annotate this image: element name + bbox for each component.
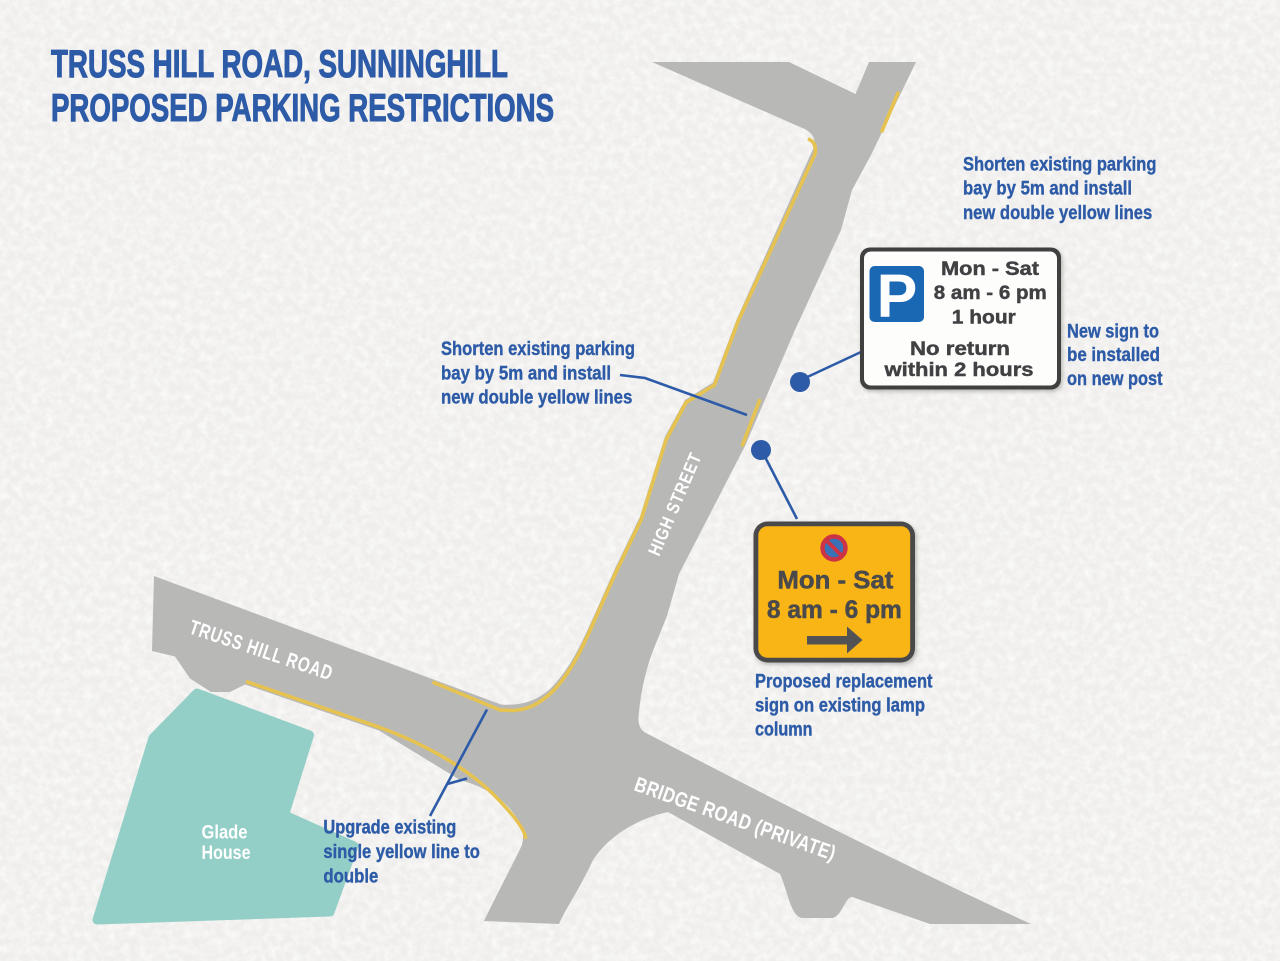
- svg-text:No return: No return: [910, 338, 1010, 360]
- svg-text:bay by 5m and install: bay by 5m and install: [441, 363, 611, 385]
- svg-text:Mon - Sat: Mon - Sat: [941, 258, 1040, 280]
- svg-text:Shorten existing parking: Shorten existing parking: [441, 338, 635, 360]
- svg-text:House: House: [202, 843, 251, 864]
- svg-text:TRUSS HILL ROAD, SUNNINGHILL: TRUSS HILL ROAD, SUNNINGHILL: [51, 43, 508, 86]
- svg-text:Mon - Sat: Mon - Sat: [777, 566, 894, 594]
- svg-text:PROPOSED PARKING RESTRICTIONS: PROPOSED PARKING RESTRICTIONS: [51, 87, 554, 130]
- svg-text:Upgrade existing: Upgrade existing: [323, 817, 456, 839]
- svg-text:bay by 5m and install: bay by 5m and install: [963, 178, 1132, 200]
- svg-text:new double yellow lines: new double yellow lines: [963, 202, 1152, 224]
- svg-text:new double yellow lines: new double yellow lines: [441, 387, 632, 409]
- svg-text:Proposed replacement: Proposed replacement: [755, 671, 933, 693]
- svg-text:8 am - 6 pm: 8 am - 6 pm: [767, 596, 902, 624]
- svg-text:New sign to: New sign to: [1067, 320, 1159, 342]
- svg-text:column: column: [755, 719, 813, 741]
- svg-text:1 hour: 1 hour: [952, 307, 1016, 329]
- svg-text:double: double: [323, 865, 378, 887]
- svg-text:P: P: [877, 262, 918, 330]
- svg-text:sign on existing lamp: sign on existing lamp: [755, 695, 925, 717]
- svg-text:on new post: on new post: [1067, 368, 1163, 390]
- svg-text:within 2 hours: within 2 hours: [883, 359, 1033, 381]
- svg-text:Shorten existing parking: Shorten existing parking: [963, 153, 1156, 175]
- svg-text:single yellow line to: single yellow line to: [323, 841, 480, 863]
- svg-text:Glade: Glade: [202, 823, 248, 844]
- svg-text:8 am - 6 pm: 8 am - 6 pm: [934, 282, 1047, 304]
- svg-text:be installed: be installed: [1067, 344, 1160, 366]
